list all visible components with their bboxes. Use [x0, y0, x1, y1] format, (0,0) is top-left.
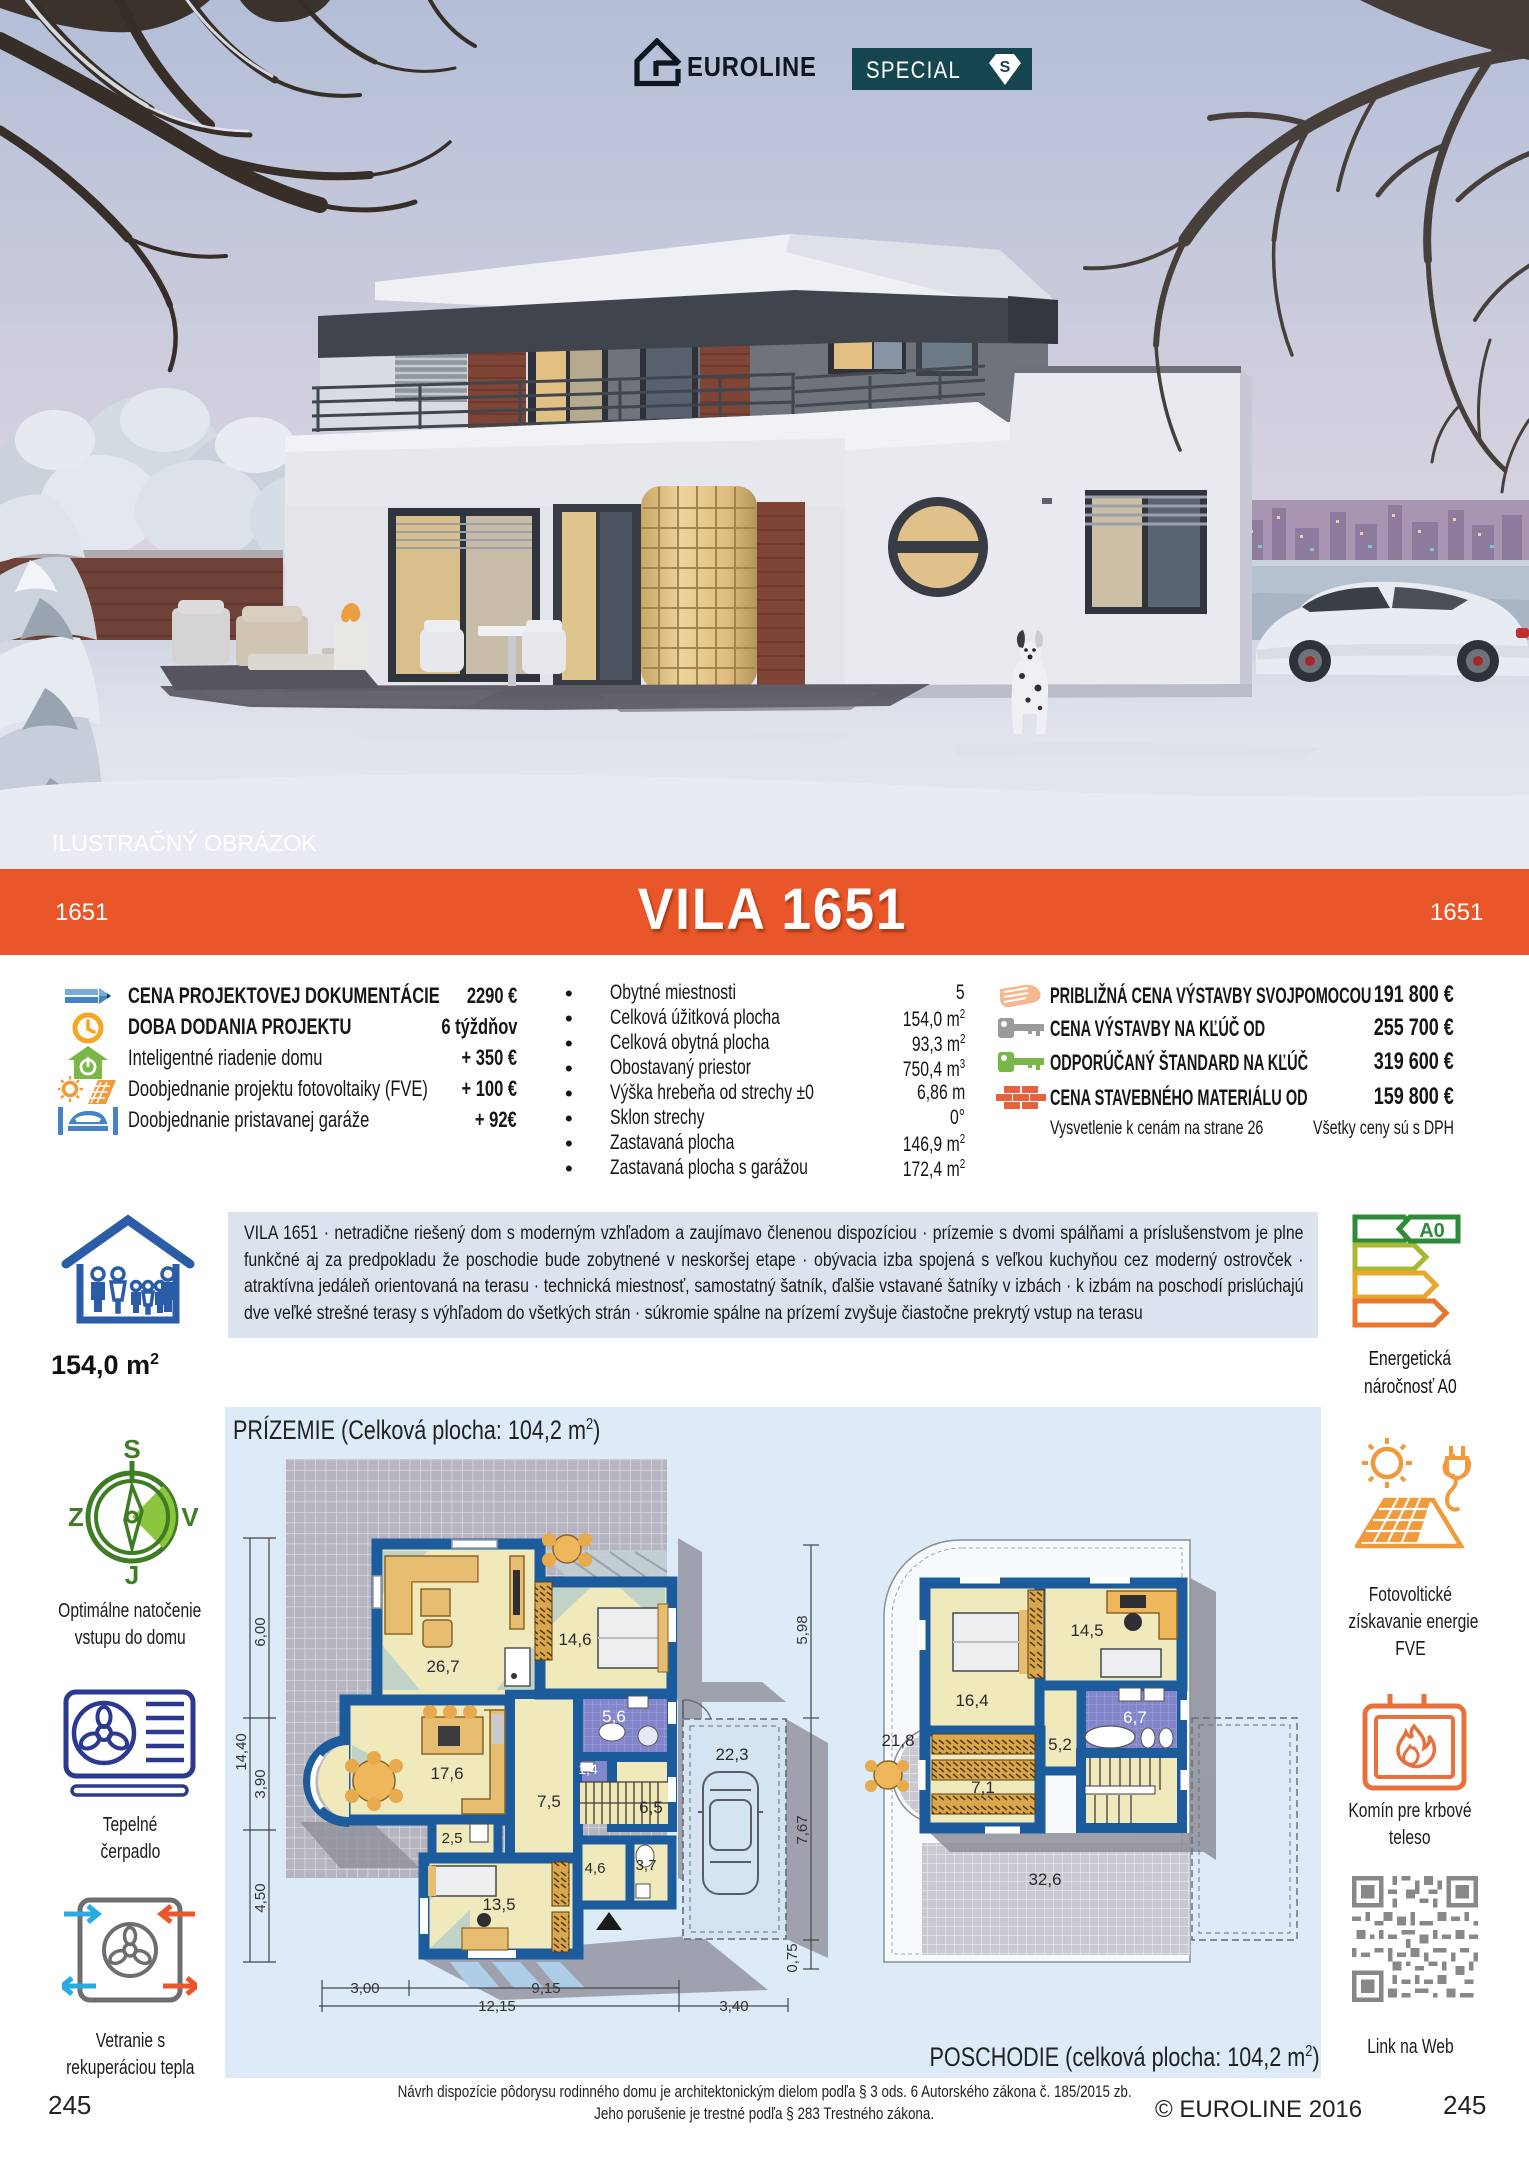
svg-text:6,5: 6,5 — [639, 1798, 663, 1817]
svg-text:16,4: 16,4 — [955, 1691, 988, 1710]
svg-text:7,67: 7,67 — [794, 1815, 811, 1844]
svg-text:14,6: 14,6 — [558, 1630, 591, 1649]
svg-text:14,40: 14,40 — [233, 1733, 250, 1771]
svg-text:22,3: 22,3 — [715, 1745, 748, 1764]
svg-text:3,90: 3,90 — [252, 1769, 269, 1798]
svg-text:2,5: 2,5 — [442, 1830, 463, 1847]
svg-text:7,5: 7,5 — [537, 1792, 561, 1811]
svg-text:3,7: 3,7 — [636, 1857, 657, 1874]
svg-text:1,4: 1,4 — [578, 1761, 598, 1777]
svg-text:V: V — [181, 1502, 199, 1532]
svg-text:Z: Z — [68, 1502, 84, 1532]
svg-text:14,5: 14,5 — [1070, 1621, 1103, 1640]
svg-text:13,5: 13,5 — [482, 1895, 515, 1914]
svg-text:32,6: 32,6 — [1028, 1870, 1061, 1889]
svg-text:7,1: 7,1 — [971, 1778, 995, 1797]
svg-text:17,6: 17,6 — [430, 1764, 463, 1783]
svg-text:ILUSTRAČNÝ OBRÁZOK: ILUSTRAČNÝ OBRÁZOK — [52, 829, 317, 856]
svg-text:5,6: 5,6 — [602, 1707, 626, 1726]
svg-text:6,7: 6,7 — [1123, 1708, 1147, 1727]
svg-text:9,15: 9,15 — [531, 1980, 560, 1997]
svg-text:4,50: 4,50 — [252, 1883, 269, 1912]
svg-text:5,98: 5,98 — [794, 1615, 811, 1644]
svg-text:S: S — [1000, 59, 1011, 76]
svg-text:3,40: 3,40 — [719, 1998, 748, 2015]
svg-text:21,8: 21,8 — [881, 1731, 914, 1750]
svg-text:3,00: 3,00 — [350, 1980, 379, 1997]
svg-text:0,75: 0,75 — [784, 1943, 801, 1972]
svg-text:26,7: 26,7 — [426, 1657, 459, 1676]
svg-text:12,15: 12,15 — [478, 1998, 516, 2015]
svg-text:J: J — [125, 1560, 139, 1586]
svg-text:5,2: 5,2 — [1048, 1735, 1072, 1754]
svg-text:4,6: 4,6 — [585, 1860, 606, 1877]
svg-text:A0: A0 — [1419, 1220, 1445, 1242]
svg-text:6,00: 6,00 — [252, 1617, 269, 1646]
svg-text:S: S — [123, 1436, 140, 1464]
